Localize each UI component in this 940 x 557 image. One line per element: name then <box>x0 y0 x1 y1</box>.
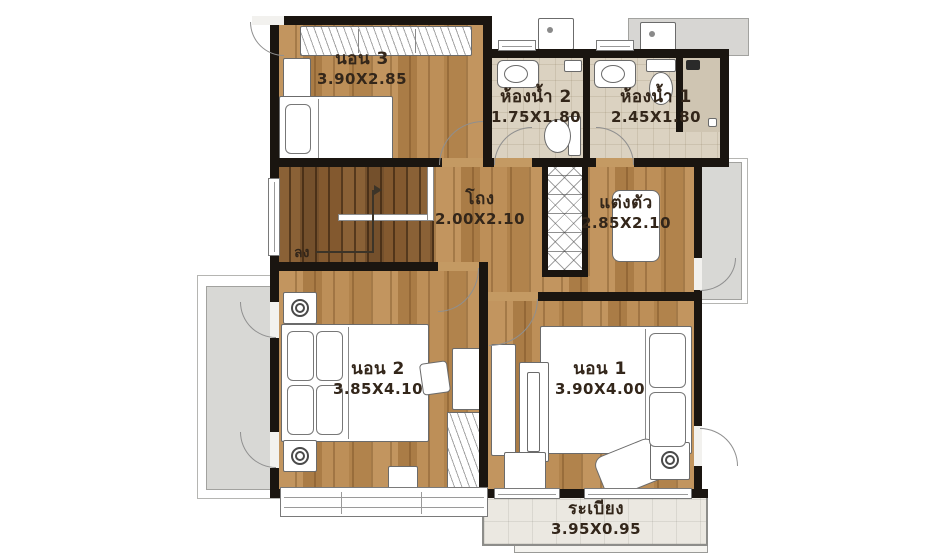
sink-basin <box>504 65 528 83</box>
room-name: แต่งตัว <box>558 192 694 214</box>
dressing-label: แต่งตัว 2.85X2.10 <box>558 192 694 234</box>
room-dim: 2.45X1.80 <box>588 108 724 128</box>
room-dim: 3.85X4.10 <box>308 380 448 400</box>
room-name: ห้องน้ำ 1 <box>588 86 724 108</box>
bedroom1-right-door-arc <box>700 428 738 466</box>
room-name: นอน 1 <box>530 358 670 380</box>
topleft-door-arc <box>250 22 284 56</box>
pillow <box>649 392 686 447</box>
room-dim: 3.95X0.95 <box>522 520 670 540</box>
sink-basin <box>601 65 625 83</box>
shower-head <box>686 60 700 70</box>
pillow <box>285 104 311 154</box>
wall-closet-bottom <box>542 270 588 277</box>
stairs-window <box>268 178 280 256</box>
bathroom1-label: ห้องน้ำ 1 2.45X1.80 <box>588 86 724 128</box>
bedroom1-label: นอน 1 3.90X4.00 <box>530 358 670 400</box>
room-name: นอน 3 <box>292 48 432 70</box>
lamp-icon <box>291 299 309 317</box>
bathroom2-window <box>498 40 536 51</box>
bedroom2-label: นอน 2 3.85X4.10 <box>308 358 448 400</box>
lamp-icon <box>661 451 679 469</box>
desk <box>452 348 481 410</box>
stair-arrow-icon <box>374 185 382 195</box>
stairs-down-label: ลง <box>294 242 309 264</box>
stair-direction-line-h <box>316 251 374 253</box>
bathroom2-shelf <box>564 60 582 72</box>
wall-left-exterior <box>270 16 279 498</box>
wall-center <box>479 262 488 498</box>
room-dim: 1.75X1.80 <box>468 108 604 128</box>
stair-direction-line-v <box>372 190 374 253</box>
bedroom2-wardrobe <box>447 412 481 492</box>
room-name: ระเบียง <box>522 498 670 520</box>
room-dim: 2.85X2.10 <box>558 214 694 234</box>
dresser <box>491 344 516 456</box>
room-dim: 3.90X4.00 <box>530 380 670 400</box>
floor-plan: นอน 3 3.90X2.85 ห้องน้ำ 2 1.75X1.80 ห้อง… <box>0 0 940 557</box>
rooftop-unit <box>538 18 574 50</box>
room-dim: 3.90X2.85 <box>292 70 432 90</box>
bedroom3-label: นอน 3 3.90X2.85 <box>292 48 432 90</box>
bathroom1-window <box>596 40 634 51</box>
hall-label: โถง 2.00X2.10 <box>412 188 548 230</box>
room-name: โถง <box>412 188 548 210</box>
room-name: นอน 2 <box>308 358 448 380</box>
room-dim: 2.00X2.10 <box>412 210 548 230</box>
room-name: ห้องน้ำ 2 <box>468 86 604 108</box>
lamp-icon <box>291 447 309 465</box>
balcony-label: ระเบียง 3.95X0.95 <box>522 498 670 540</box>
wall-dressing-bottom <box>538 292 702 301</box>
bedroom2-window-band <box>280 487 488 517</box>
wall-bedroom1-right <box>694 300 702 428</box>
wall-bedroom3-bottom <box>270 158 442 167</box>
rooftop-unit <box>640 22 676 52</box>
bathroom2-label: ห้องน้ำ 2 1.75X1.80 <box>468 86 604 128</box>
wall-dressing-right <box>694 164 702 260</box>
wall-top-bedroom3 <box>270 16 492 25</box>
toilet-tank <box>646 59 676 72</box>
